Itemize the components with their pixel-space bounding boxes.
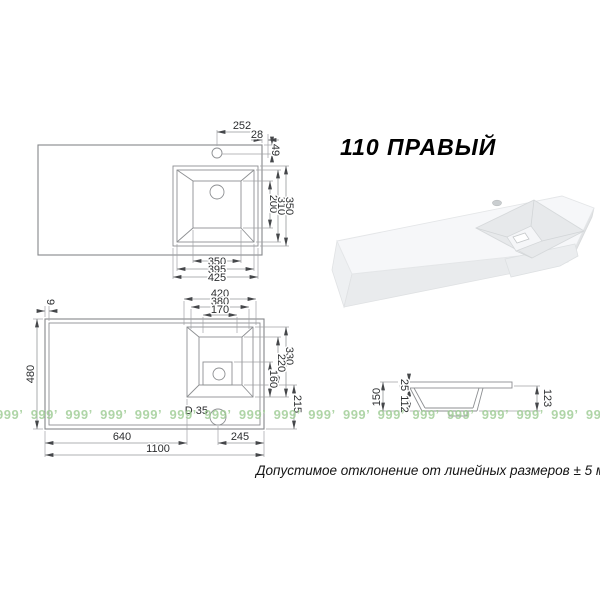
- dim-hole-to-edge: 252: [233, 120, 251, 132]
- top-view-drawing: 252 28 49 200 310 350 350 395 425: [38, 120, 295, 284]
- drain-recess: [203, 362, 232, 385]
- dim-rim-outer-width: 425: [208, 272, 226, 284]
- countertop-outline: [38, 145, 262, 255]
- deck-section: [400, 382, 512, 388]
- technical-sheet: 252 28 49 200 310 350 350 395 425: [0, 0, 600, 600]
- tolerance-note: Допустимое отклонение от линейных размер…: [256, 463, 600, 478]
- sink-bowl-bottom: [199, 337, 242, 385]
- drain-hole: [213, 368, 225, 380]
- dim-total-height: 150: [371, 388, 383, 406]
- sink-bowl-bottom: [193, 181, 241, 228]
- dim-edge-border: 9: [44, 299, 56, 305]
- drawing-canvas: 252 28 49 200 310 350 350 395 425: [0, 0, 600, 600]
- dim-drain-width: 170: [211, 304, 229, 316]
- render-faucet-hole: [493, 200, 502, 206]
- product-render-3d: [332, 196, 594, 307]
- dim-depth: 480: [25, 365, 37, 383]
- dim-deck-thickness: 25: [398, 379, 410, 391]
- watermark-band: 999’ 999’ 999’ 999’ 999’ 999’ 999’ 999’ …: [0, 407, 600, 427]
- page-title: 110 ПРАВЫЙ: [340, 134, 496, 161]
- bottom-view-drawing: 420 380 170 9 480 330 220 160 215 D 35 6…: [25, 288, 303, 457]
- dim-right-height: 123: [541, 389, 553, 407]
- dim-left-section: 640: [113, 431, 131, 443]
- dim-rim-outer-len: 350: [283, 197, 295, 215]
- faucet-hole: [212, 148, 222, 158]
- drain-hole: [210, 185, 224, 199]
- dim-hole-to-right: 245: [231, 431, 249, 443]
- dim-hole-from-front: 49: [269, 144, 281, 156]
- dim-total-width: 1100: [146, 443, 170, 455]
- dim-edge-offset: 28: [251, 129, 263, 141]
- dim-drain-len: 160: [267, 370, 279, 388]
